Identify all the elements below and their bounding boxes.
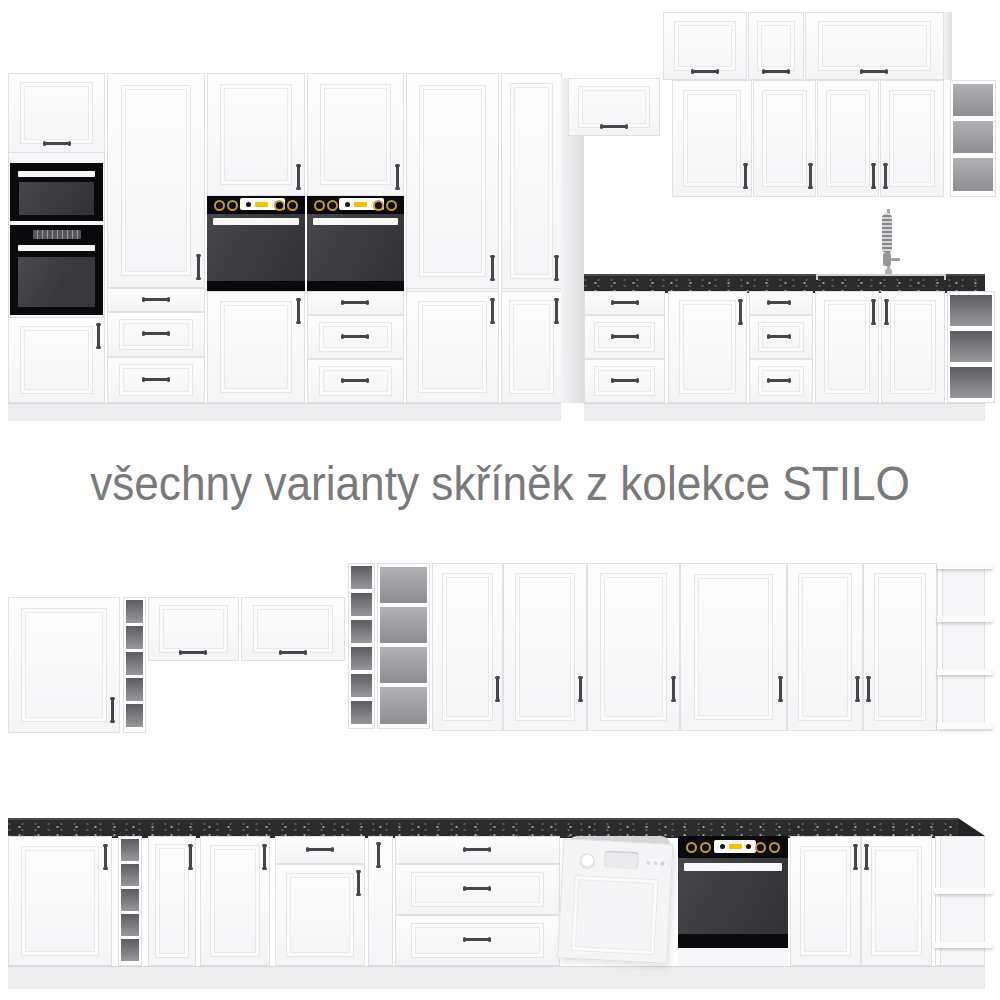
door-panel — [600, 573, 667, 721]
flip-door-wall-cabinet — [663, 12, 747, 80]
faucet-spring — [882, 213, 892, 253]
microwave-handle — [18, 171, 95, 177]
shelf-cell — [121, 864, 139, 886]
display-dot — [746, 844, 751, 849]
door-handle — [809, 164, 812, 188]
drawer-handle — [768, 379, 790, 382]
oven-knob — [700, 842, 711, 853]
door-panel — [286, 873, 354, 957]
door-panel — [121, 85, 191, 276]
shelf-cell — [121, 839, 139, 861]
dishwasher-button — [660, 861, 664, 865]
oven-knob — [287, 200, 298, 211]
tall-cabinet-door — [863, 563, 937, 731]
door-panel — [509, 300, 554, 394]
base-drawer-unit — [584, 291, 665, 403]
door-panel — [220, 84, 292, 185]
door-handle — [872, 164, 875, 188]
cabinet-door — [8, 317, 105, 403]
tall-cabinet-door — [680, 563, 787, 731]
cabinet-door — [406, 291, 499, 403]
plinth — [584, 403, 985, 421]
door-panel — [874, 573, 926, 721]
base-door-cabinet — [8, 836, 112, 966]
display-dot — [246, 202, 251, 207]
wall-cabinet-door — [880, 80, 944, 197]
door-handle — [104, 845, 107, 869]
shelf-cell — [121, 889, 139, 911]
tall-open-shelf — [377, 563, 430, 729]
drawer-front — [395, 864, 560, 915]
door-handle — [263, 845, 266, 869]
door-handle — [885, 300, 888, 324]
door-panel — [578, 86, 650, 128]
drawer-handle — [143, 332, 169, 335]
open-end-shelf — [937, 563, 985, 729]
door-handle — [601, 125, 627, 128]
door-handle — [867, 677, 870, 701]
door-panel — [515, 573, 575, 721]
shelf-board — [937, 669, 993, 675]
plinth — [8, 966, 985, 989]
tall-cabinet-door — [432, 563, 503, 731]
door-handle — [872, 300, 875, 324]
door-handle — [555, 256, 558, 280]
drawer-handle — [342, 301, 368, 304]
dishwasher-button — [653, 861, 657, 865]
door-panel — [674, 21, 736, 71]
drawer-handle — [612, 335, 638, 338]
shelf-cell — [121, 939, 139, 961]
shelf-cell — [126, 678, 143, 701]
door-panel — [510, 83, 553, 279]
drawer-handle — [342, 379, 368, 382]
oven-knob — [769, 842, 780, 853]
door-handle — [856, 677, 859, 701]
shelf-cell — [351, 593, 372, 616]
door-panel — [871, 846, 922, 956]
drawer-front — [395, 836, 560, 864]
wall-cabinet-door — [672, 80, 752, 197]
door-panel — [800, 846, 851, 956]
oven-knob — [386, 200, 397, 211]
oven-bottom-trim — [678, 934, 788, 948]
oven-handle — [313, 218, 398, 225]
shelf-cell — [351, 566, 372, 589]
door-handle — [297, 165, 300, 189]
door-handle — [357, 871, 360, 895]
tall-oven-housing — [207, 73, 305, 403]
door-panel — [159, 605, 228, 653]
built-in-oven — [10, 225, 103, 315]
oven-knob — [373, 200, 384, 211]
product-image: všechny varianty skříněk z kolekce STILO — [0, 0, 1000, 1000]
oven-knob — [274, 200, 285, 211]
dishwasher-handle-pocket — [604, 850, 639, 869]
tall-cabinet — [8, 73, 105, 403]
drawer-handle — [768, 301, 790, 304]
sink-base-door — [881, 291, 945, 403]
door-handle — [396, 165, 399, 189]
tall-narrow-shelf-column — [348, 563, 375, 729]
drawer-door-cabinet — [275, 836, 365, 966]
door-panel — [253, 605, 333, 653]
shelf-board — [937, 563, 993, 569]
drawer-front — [107, 312, 205, 357]
narrow-shelf-column — [118, 836, 142, 966]
sink-base-door — [815, 291, 879, 403]
shelf-board — [935, 888, 993, 894]
door-handle — [44, 142, 70, 145]
countertop — [8, 818, 958, 838]
cabinet-door — [307, 73, 404, 196]
shelf-cell — [126, 652, 143, 675]
wall-open-shelf — [950, 80, 996, 197]
door-panel — [757, 21, 795, 71]
oven-control-panel — [678, 836, 788, 858]
shelf-cell — [351, 620, 372, 643]
built-in-oven — [307, 196, 404, 291]
oven-knob — [214, 200, 225, 211]
oven-display — [33, 230, 81, 239]
door-handle — [97, 324, 100, 348]
drawer-handle — [342, 335, 368, 338]
oven-knob — [314, 200, 325, 211]
door-handle — [111, 698, 114, 722]
cabinet-door — [207, 73, 305, 196]
oven-knob — [686, 842, 697, 853]
shelf-side-panel — [937, 563, 943, 729]
shelf-board — [937, 616, 993, 622]
door-handle — [189, 845, 192, 869]
tall-cabinet — [107, 73, 205, 403]
double-door-cabinet — [790, 836, 932, 966]
built-in-oven — [207, 196, 305, 291]
door-handle — [297, 299, 300, 323]
door-handle — [763, 70, 789, 73]
shelf-cell — [950, 367, 992, 398]
wall-cabinet-door — [753, 80, 816, 197]
shelf-cell — [950, 295, 992, 326]
oven-display — [714, 840, 756, 853]
cabinet-door — [406, 73, 499, 289]
door-handle — [491, 299, 494, 323]
door-handle — [197, 255, 200, 279]
shelf-board — [937, 723, 993, 729]
tall-oven-housing — [307, 73, 404, 403]
oven-handle — [213, 218, 299, 225]
display-yellow — [354, 202, 367, 207]
drawer-handle — [612, 301, 638, 304]
shelf-cell — [380, 687, 427, 724]
cabinet-door — [8, 73, 105, 153]
door-panel — [890, 300, 936, 394]
door-panel — [679, 300, 736, 394]
cabinet-side-panel — [944, 12, 952, 80]
shelf-cell — [121, 914, 139, 936]
shelf-cell — [126, 600, 143, 623]
display-yellow — [729, 844, 742, 849]
microwave-window — [19, 182, 94, 215]
door-panel — [419, 85, 486, 277]
door-panel — [20, 326, 93, 394]
tall-cabinet-door — [503, 563, 587, 731]
flip-door-wall-cabinet — [805, 12, 944, 80]
drawer-front — [307, 315, 404, 359]
door-panel — [824, 300, 870, 394]
door-panel — [320, 84, 391, 185]
base-door-cabinet — [200, 836, 270, 966]
caption: všechny varianty skříněk z kolekce STILO — [40, 452, 960, 516]
door-panel — [155, 844, 189, 958]
shelf-cell — [126, 626, 143, 649]
drawer-front — [275, 836, 365, 864]
cabinet-door — [861, 836, 932, 966]
dishwasher-button — [646, 861, 650, 865]
flip-door-wall-cabinet — [568, 78, 660, 136]
plinth — [8, 403, 561, 421]
door-handle — [779, 677, 782, 701]
tall-cabinet — [406, 73, 499, 403]
shelf-cell — [351, 674, 372, 697]
sink-rim — [816, 274, 946, 280]
door-panel — [683, 90, 741, 187]
door-handle — [377, 843, 380, 867]
door-handle — [744, 164, 747, 188]
door-panel — [694, 574, 773, 720]
tall-cabinet-door — [787, 563, 863, 731]
wall-cabinet-door — [817, 80, 879, 197]
door-panel — [442, 573, 493, 721]
drawer-handle — [464, 848, 490, 851]
oven-handle — [684, 863, 782, 871]
faucet — [876, 203, 902, 279]
faucet-lever — [891, 258, 900, 261]
built-in-microwave — [10, 163, 103, 221]
door-panel — [418, 301, 487, 393]
oven-knob — [755, 842, 766, 853]
square-wall-cabinet — [8, 597, 120, 733]
cabinet-door — [107, 73, 205, 288]
shelf-cell — [351, 701, 372, 724]
door-panel — [21, 608, 107, 722]
drawer-handle — [464, 938, 490, 941]
door-handle — [180, 651, 206, 654]
drawer-front — [584, 359, 665, 403]
drawer-handle — [307, 848, 333, 851]
drawer-front — [307, 359, 404, 403]
shelf-cell — [126, 704, 143, 727]
door-handle — [861, 70, 887, 73]
drawer-front — [107, 357, 205, 403]
oven-knob — [227, 200, 238, 211]
base-door-cabinet — [668, 291, 747, 403]
drawer-front — [749, 291, 813, 315]
dishwasher-knob — [580, 853, 595, 868]
door-panel — [21, 846, 99, 956]
door-panel — [798, 573, 852, 721]
shelf-cell — [380, 647, 427, 683]
door-panel — [762, 90, 807, 187]
shelf-cell — [953, 158, 993, 191]
drawer-front — [395, 915, 560, 966]
door-handle — [579, 677, 582, 701]
narrow-door-cabinet — [148, 836, 196, 966]
display-dot — [720, 844, 725, 849]
drawer-handle — [464, 887, 490, 890]
drawer-handle — [768, 335, 790, 338]
shelf-cell — [953, 84, 993, 116]
shelf-cell — [351, 647, 372, 670]
door-handle — [854, 845, 857, 869]
dishwasher-button — [667, 861, 672, 866]
door-handle — [672, 677, 675, 701]
shelf-board — [935, 942, 993, 948]
built-in-oven — [678, 836, 788, 966]
door-panel — [20, 82, 93, 144]
shelf-cell — [950, 331, 992, 362]
three-drawer-unit — [395, 836, 560, 966]
door-panel — [210, 845, 260, 957]
door-handle — [491, 256, 494, 280]
door-handle — [496, 677, 499, 701]
drawer-front — [307, 291, 404, 315]
cabinet-door — [207, 291, 305, 403]
dishwasher-panel — [571, 875, 659, 955]
oven-bottom-trim — [307, 281, 404, 291]
oven-knob — [327, 200, 338, 211]
drawer-front — [107, 288, 205, 312]
door-handle — [280, 651, 306, 654]
base-open-shelf — [947, 291, 995, 403]
cabinet-door — [501, 73, 562, 289]
door-panel — [220, 301, 292, 393]
flip-door-wall-cabinet — [748, 12, 804, 80]
cabinet-door — [501, 291, 562, 403]
dishwasher — [562, 834, 676, 964]
door-handle — [692, 70, 718, 73]
display-yellow — [255, 202, 268, 207]
oven-bottom-trim — [207, 281, 305, 291]
faucet-spout — [883, 253, 891, 266]
open-end-corner-shelf — [935, 836, 985, 966]
flip-door-wall-cabinet — [241, 597, 345, 661]
oven-handle — [18, 245, 95, 251]
drawer-handle — [143, 378, 169, 381]
drawer-front — [749, 359, 813, 403]
door-panel — [889, 90, 935, 187]
door-handle — [884, 164, 887, 188]
countertop-end — [958, 818, 985, 836]
shelf-cell — [380, 567, 427, 603]
door-panel — [826, 90, 870, 187]
door-handle — [865, 845, 868, 869]
narrow-shelf-column — [123, 597, 146, 733]
flip-door-wall-cabinet — [148, 597, 239, 661]
drawer-handle — [143, 298, 169, 301]
tall-cabinet-door — [587, 563, 680, 731]
dishwasher-front — [557, 838, 673, 964]
drawer-front — [584, 291, 665, 315]
narrow-pullout-cabinet — [368, 836, 393, 966]
shelf-cell — [380, 607, 427, 643]
display-dot — [345, 202, 350, 207]
drawer-handle — [612, 379, 638, 382]
drawer-front — [749, 315, 813, 359]
cabinet-door — [275, 864, 365, 966]
door-handle — [739, 300, 742, 324]
drawer-front — [584, 315, 665, 359]
cabinet-door — [790, 836, 861, 966]
door-handle — [555, 299, 558, 323]
oven-window — [18, 257, 95, 307]
base-drawer-unit — [749, 291, 813, 403]
shelf-cell — [953, 121, 993, 153]
tall-narrow-cabinet — [501, 73, 562, 403]
door-panel — [818, 21, 931, 71]
